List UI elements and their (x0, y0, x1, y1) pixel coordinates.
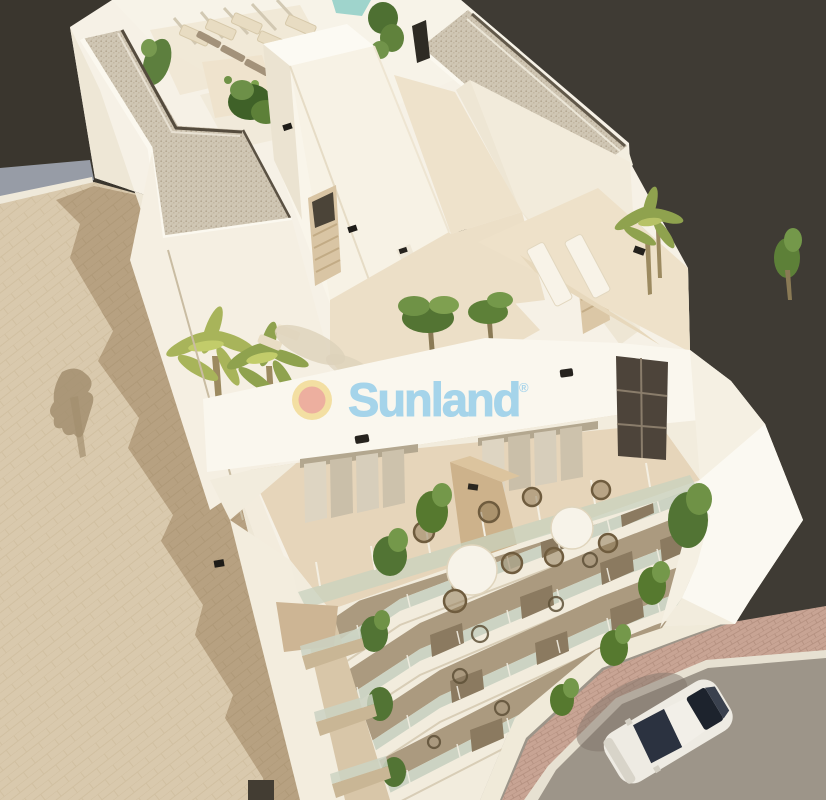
svg-text:Sunland: Sunland (348, 373, 519, 426)
svg-text:®: ® (519, 380, 529, 395)
